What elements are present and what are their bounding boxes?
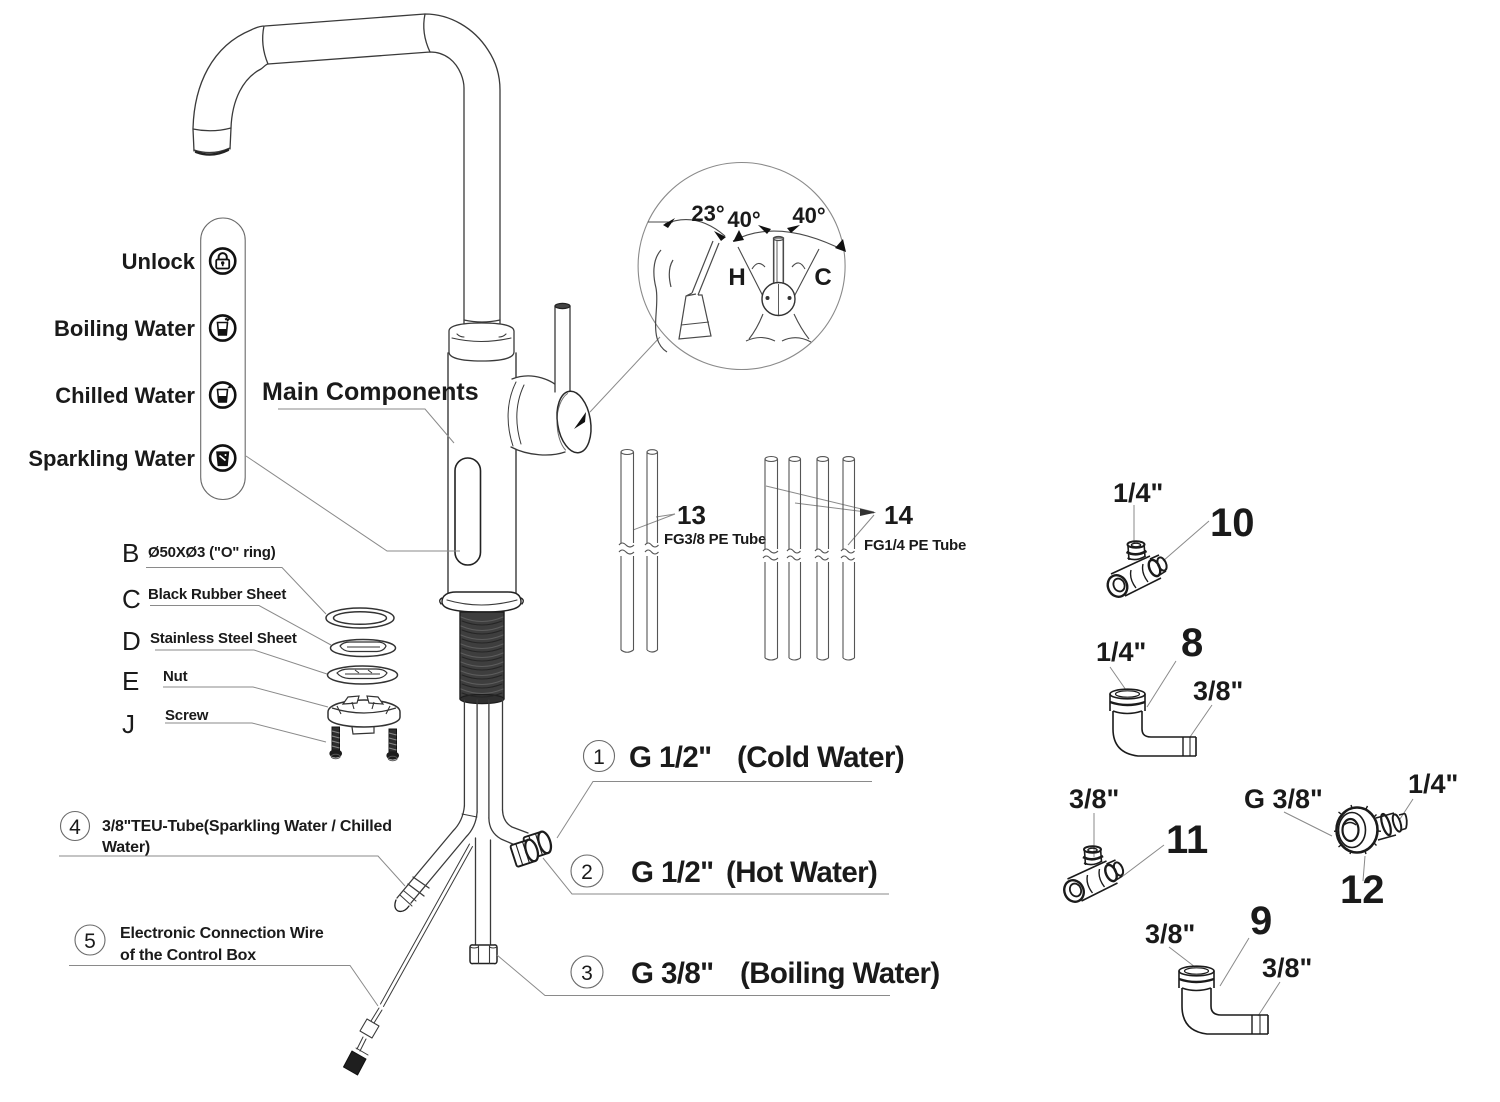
svg-text:4: 4	[69, 816, 81, 839]
svg-text:Boiling Water: Boiling Water	[54, 316, 195, 341]
svg-text:B: B	[122, 538, 139, 568]
svg-text:(Boiling Water): (Boiling Water)	[740, 957, 940, 990]
svg-text:1/4": 1/4"	[1096, 637, 1146, 667]
svg-text:5: 5	[84, 930, 96, 953]
svg-text:Electronic Connection Wire: Electronic Connection Wire	[120, 925, 324, 942]
svg-text:10: 10	[1210, 501, 1255, 545]
svg-text:of the Control Box: of the Control Box	[120, 947, 256, 964]
svg-text:G 1/2": G 1/2"	[631, 856, 714, 889]
svg-text:G 3/8": G 3/8"	[1244, 784, 1323, 814]
svg-text:1/4": 1/4"	[1113, 478, 1163, 508]
svg-text:Stainless Steel Sheet: Stainless Steel Sheet	[150, 630, 297, 647]
svg-text:13: 13	[677, 500, 706, 530]
svg-text:Black Rubber Sheet: Black Rubber Sheet	[148, 586, 286, 603]
svg-text:Water): Water)	[102, 839, 150, 856]
svg-text:8: 8	[1181, 621, 1203, 665]
svg-text:3: 3	[581, 962, 593, 985]
svg-text:1/4": 1/4"	[1408, 769, 1458, 799]
svg-text:11: 11	[1166, 818, 1208, 862]
svg-text:J: J	[122, 709, 135, 739]
svg-text:2: 2	[581, 861, 593, 884]
svg-text:3/8"TEU-Tube(Sparkling Water /: 3/8"TEU-Tube(Sparkling Water / Chilled	[102, 818, 392, 835]
svg-text:3/8": 3/8"	[1069, 784, 1119, 814]
svg-text:C: C	[814, 264, 831, 291]
svg-text:Ø50XØ3 ("O" ring): Ø50XØ3 ("O" ring)	[148, 544, 276, 561]
svg-text:3/8": 3/8"	[1193, 676, 1243, 706]
svg-text:G 3/8": G 3/8"	[631, 957, 714, 990]
svg-text:E: E	[122, 666, 139, 696]
svg-text:Sparkling Water: Sparkling Water	[28, 446, 195, 471]
svg-text:40°: 40°	[792, 203, 825, 228]
svg-text:Nut: Nut	[163, 668, 188, 685]
svg-text:FG3/8 PE Tube: FG3/8 PE Tube	[664, 531, 766, 548]
svg-text:3/8": 3/8"	[1262, 953, 1312, 983]
svg-text:(Cold Water): (Cold Water)	[737, 741, 904, 774]
svg-text:14: 14	[884, 500, 913, 530]
svg-text:3/8": 3/8"	[1145, 919, 1195, 949]
svg-text:23°: 23°	[691, 201, 724, 226]
svg-text:12: 12	[1340, 868, 1385, 912]
svg-text:FG1/4 PE Tube: FG1/4 PE Tube	[864, 537, 966, 554]
svg-text:Main Components: Main Components	[262, 378, 479, 406]
svg-text:Chilled Water: Chilled Water	[55, 383, 195, 408]
svg-text:D: D	[122, 626, 141, 656]
svg-text:(Hot Water): (Hot Water)	[726, 856, 877, 889]
svg-text:H: H	[728, 264, 745, 291]
svg-text:Screw: Screw	[165, 707, 209, 724]
svg-text:40°: 40°	[727, 207, 760, 232]
svg-text:9: 9	[1250, 899, 1272, 943]
svg-text:C: C	[122, 584, 141, 614]
svg-text:G 1/2": G 1/2"	[629, 741, 712, 774]
svg-text:1: 1	[593, 746, 605, 769]
svg-text:Unlock: Unlock	[122, 249, 196, 274]
